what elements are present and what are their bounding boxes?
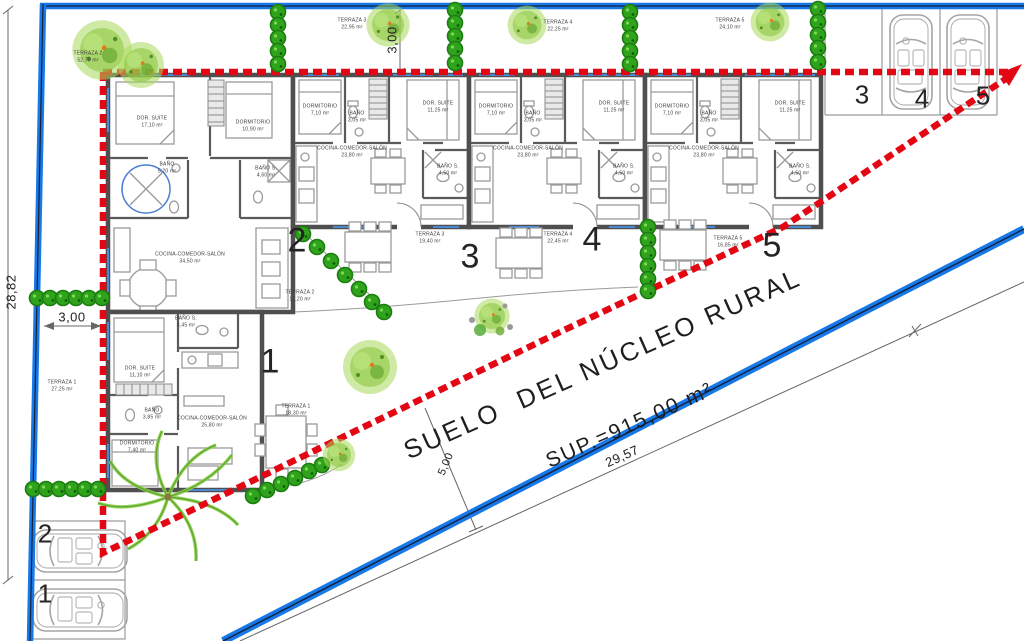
room-label-u5-bathsuite: BAÑO S.4,50 m² [789, 164, 811, 177]
unit-number-5: 5 [763, 227, 782, 266]
terrace-label-south-2: TERRAZA 217,20 m² [285, 290, 314, 303]
room-label-u5-kitchen: COCINA-COMEDOR-SALÓN23,80 m² [669, 146, 739, 159]
parking-number-2: 2 [38, 519, 52, 550]
room-label-u2-bath: BAÑO5,20 m² [158, 162, 176, 175]
room-label-u2-kitchen: COCINA-COMEDOR-SALÓN34,50 m² [155, 252, 225, 265]
parking-number-5: 5 [976, 81, 990, 112]
room-label-u1-bath: BAÑO3,85 m² [143, 408, 161, 421]
terrace-label-south-5: TERRAZA 516,85 m² [713, 236, 742, 249]
building-unit1 [108, 312, 262, 490]
unit-number-2: 2 [288, 222, 307, 261]
dim-west-setback: 3,00 [58, 310, 85, 325]
room-label-u1-kitchen: COCINA-COMEDOR-SALÓN25,80 m² [177, 416, 247, 429]
room-label-u4-suite: DOR. SUITE11,25 m² [599, 101, 630, 114]
site-plan: SUELO DEL NÚCLEO RURAL SUP.=915,00 m² 28… [0, 0, 1024, 641]
room-label-u4-bath: BAÑO3,05 m² [524, 111, 542, 124]
terrace-label-south-3: TERRAZA 319,40 m² [415, 232, 444, 245]
terrace-label-north-4: TERRAZA 422,25 m² [543, 20, 572, 33]
terrace-label-north-5: TERRAZA 524,10 m² [715, 18, 744, 31]
room-label-u4-dorm: DORMITORIO7,10 m² [479, 104, 513, 117]
parking-number-4: 4 [915, 84, 929, 115]
room-label-u2-dorm: DORMITORIO10,90 m² [236, 120, 270, 133]
room-label-u4-kitchen: COCINA-COMEDOR-SALÓN23,80 m² [493, 146, 563, 159]
building-left [108, 75, 293, 316]
room-label-u1-suite: DOR. SUITE11,10 m² [125, 366, 156, 379]
unit-number-4: 4 [583, 221, 602, 260]
room-label-u2-suite: DOR. SUITE17,10 m² [137, 116, 168, 129]
room-label-u5-dorm: DORMITORIO7,10 m² [655, 104, 689, 117]
room-label-u3-bath: BAÑO3,05 m² [348, 111, 366, 124]
room-label-u5-bath: BAÑO3,05 m² [700, 111, 718, 124]
dim-west-total: 28,82 [4, 274, 19, 309]
parking-number-1: 1 [38, 579, 52, 610]
room-label-u4-bathsuite: BAÑO S.4,50 m² [613, 164, 635, 177]
room-label-u1-dorm: DORMITORIO7,40 m² [120, 441, 154, 454]
plan-drawing [0, 0, 1024, 641]
unit-number-3: 3 [461, 238, 480, 277]
room-label-u5-suite: DOR. SUITE11,25 m² [775, 101, 806, 114]
terrace-label-south-4: TERRAZA 422,45 m² [543, 232, 572, 245]
room-label-u3-kitchen: COCINA-COMEDOR-SALÓN23,80 m² [317, 146, 387, 159]
terrace-label-south-1: TERRAZA 118,30 m² [281, 404, 310, 417]
room-label-u3-bathsuite: BAÑO S.4,50 m² [437, 164, 459, 177]
room-label-u3-dorm: DORMITORIO7,10 m² [303, 104, 337, 117]
parking-number-3: 3 [855, 80, 869, 111]
terrace-label-north-2: TERRAZA 252,70 m² [73, 51, 102, 64]
room-label-u1-bathsuite: BAÑO S.4,45 m² [175, 316, 197, 329]
terrace-label-north-3: TERRAZA 322,95 m² [337, 18, 366, 31]
room-label-u3-suite: DOR. SUITE11,25 m² [423, 101, 454, 114]
terrace-label-west-1: TERRAZA 127,25 m² [47, 380, 76, 393]
unit-number-1: 1 [261, 343, 280, 382]
room-label-u2-bathsuite: BAÑO S.4,60 m² [255, 166, 277, 179]
dim-north-setback: 3,00 [385, 26, 400, 53]
